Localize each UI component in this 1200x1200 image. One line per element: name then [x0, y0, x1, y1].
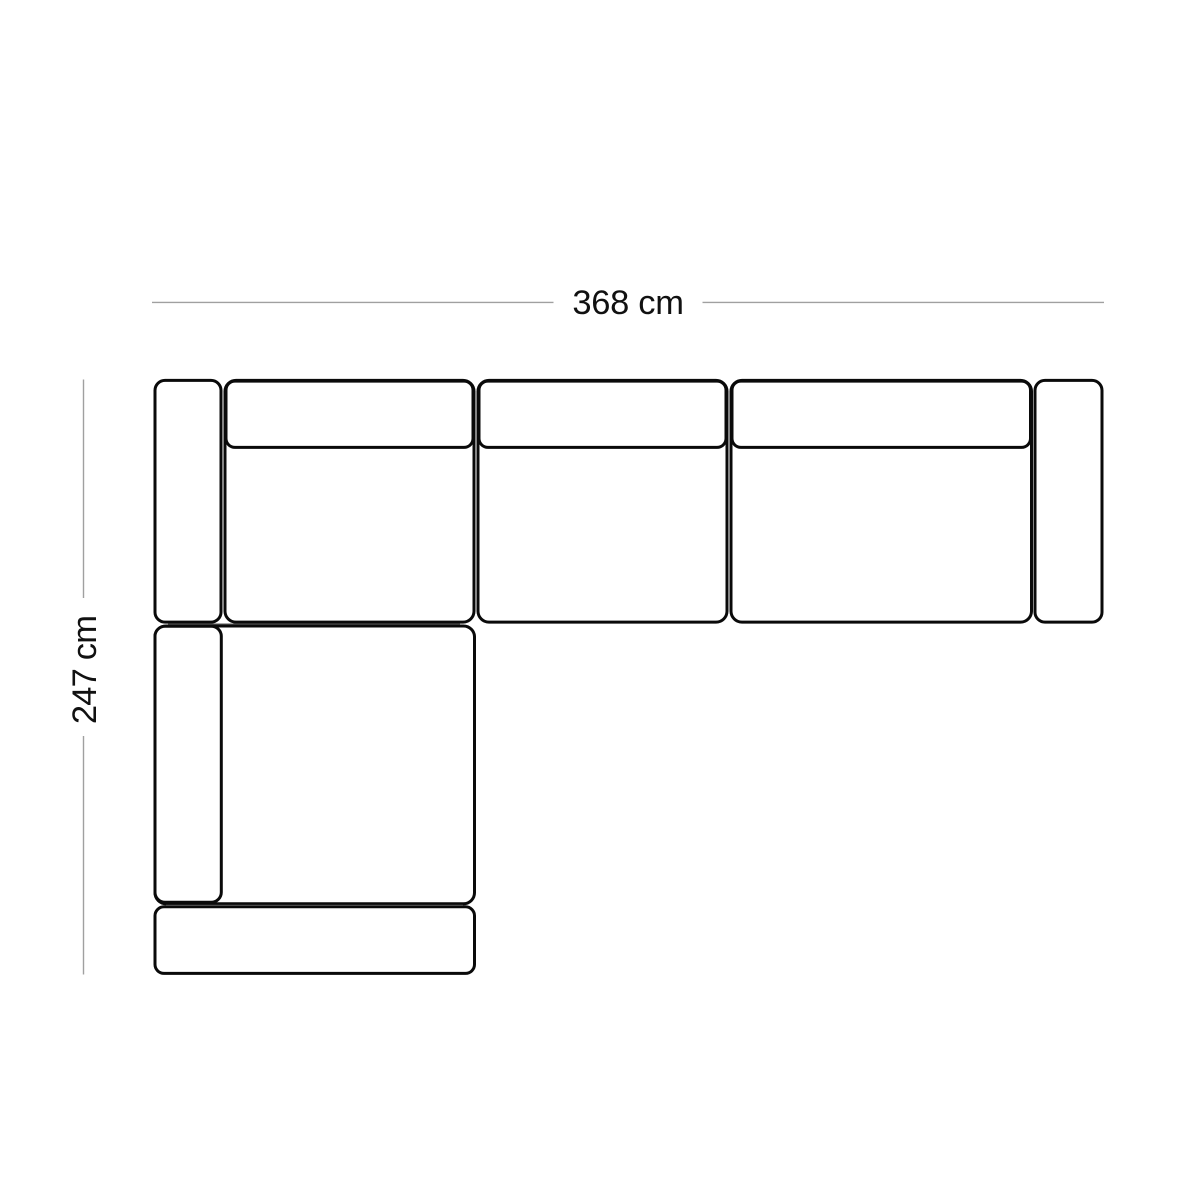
svg-text:368 cm: 368 cm — [572, 284, 683, 322]
svg-text:247 cm: 247 cm — [66, 616, 104, 724]
